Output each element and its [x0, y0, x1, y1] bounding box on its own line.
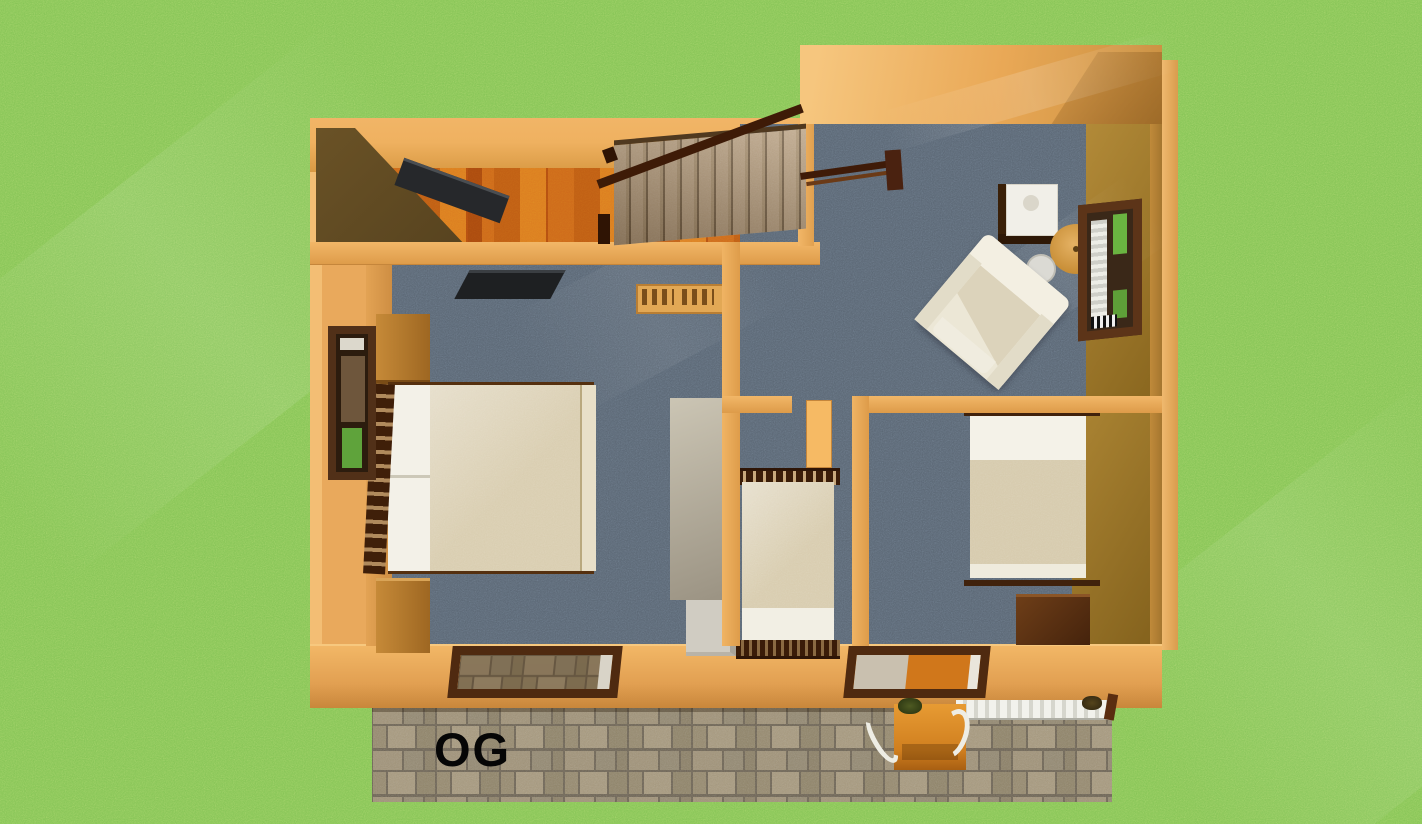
- skylight-left: [447, 646, 622, 698]
- wall-middle-room-east: [852, 396, 869, 646]
- bed-frame-line-bottom: [388, 571, 594, 574]
- wall-tv: [454, 270, 565, 299]
- handrail-corner-post: [885, 149, 904, 190]
- window-left-wall: [328, 326, 376, 480]
- printer-stand: [998, 184, 1056, 244]
- hall-north-wall-inner-face: [800, 45, 1162, 129]
- single-bed-middle: [736, 468, 840, 656]
- floor-label: OG: [434, 726, 511, 773]
- wall-gallery-south: [310, 242, 820, 265]
- building-outer-trim-right: [1160, 60, 1178, 650]
- double-bed: [388, 382, 594, 574]
- skylight-right: [843, 646, 990, 698]
- bed-side-rail: [580, 385, 596, 571]
- wall-bedroom-left-east: [722, 242, 740, 646]
- bed-foot-edge: [970, 564, 1086, 578]
- door-panel-middle-room: [806, 400, 832, 468]
- bed-blanket: [430, 385, 580, 571]
- bed-pillows: [388, 385, 430, 571]
- nightstand-top: [376, 314, 430, 384]
- wardrobe-panel: [670, 398, 724, 600]
- wall-hall-south-left: [722, 396, 792, 413]
- bed-foot-rail: [964, 580, 1100, 586]
- terrace-plant-1: [898, 698, 922, 714]
- window-right-wall: [1078, 199, 1142, 342]
- right-wall-inner-edge: [1150, 124, 1162, 646]
- stair-post-left-bottom: [598, 214, 610, 244]
- louver-vent-panel: [636, 284, 724, 314]
- wood-chest: [1016, 594, 1090, 645]
- bed-pillow: [742, 608, 834, 640]
- wall-hall-south-right: [866, 396, 1162, 413]
- bed-pillow: [970, 416, 1086, 460]
- left-wall-outer-rim: [310, 118, 322, 706]
- bed-foot-slats: [736, 640, 840, 659]
- single-bed-right: [964, 410, 1100, 586]
- floor-plan-canvas: OG: [0, 0, 1422, 824]
- bed-blanket: [742, 482, 834, 608]
- bed-blanket: [970, 460, 1086, 564]
- terrace-plant-2: [1082, 696, 1102, 710]
- nightstand-bottom: [376, 578, 430, 653]
